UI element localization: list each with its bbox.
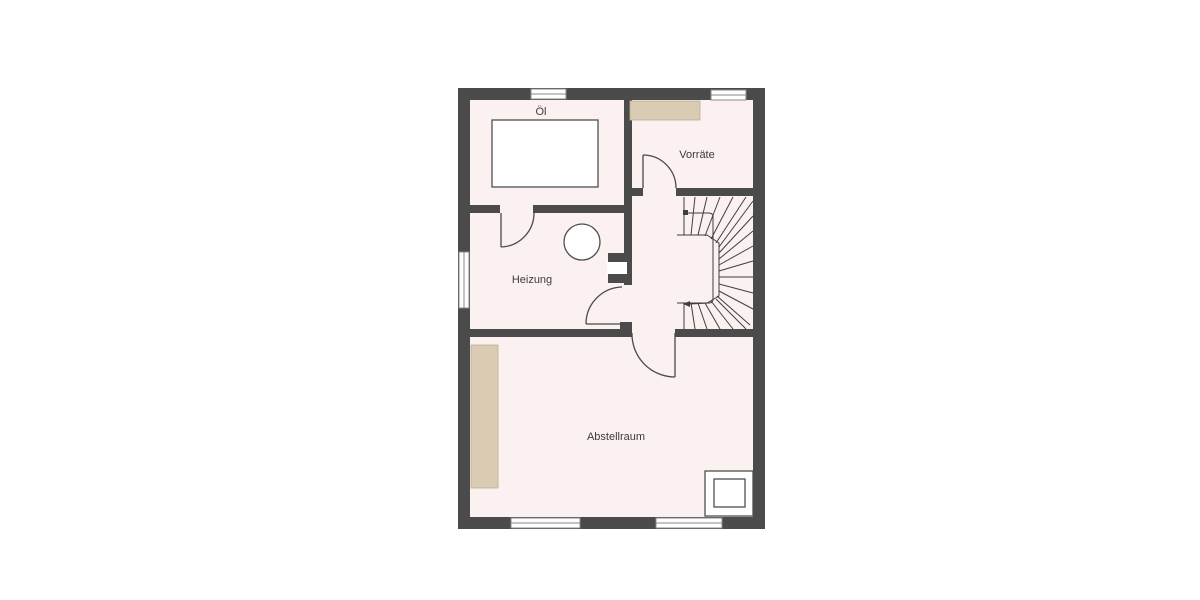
wall-segment bbox=[470, 329, 632, 337]
wall-segment bbox=[676, 188, 753, 196]
floor-shaft bbox=[705, 471, 753, 516]
wall-segment bbox=[632, 188, 643, 196]
floor-plan-canvas: Öl Vorräte Heizung Abstellraum bbox=[0, 0, 1200, 600]
window-bottom-left bbox=[511, 518, 580, 528]
window-top-oel bbox=[531, 89, 566, 99]
floor-shaft-inner bbox=[714, 479, 745, 507]
oil-tank bbox=[492, 120, 598, 187]
window-bottom-right bbox=[656, 518, 722, 528]
wall-segment bbox=[470, 205, 500, 213]
window-top-vorraete bbox=[711, 90, 746, 100]
chimney bbox=[607, 253, 632, 283]
walk-line-start-marker bbox=[683, 210, 688, 215]
storage-shelf-abstellraum bbox=[471, 345, 498, 488]
wall-segment bbox=[675, 329, 753, 337]
room-label-abstellraum: Abstellraum bbox=[587, 431, 645, 443]
room-label-vorraete: Vorräte bbox=[679, 149, 714, 161]
room-label-oel: Öl bbox=[536, 106, 547, 118]
floor-plan-svg: Öl Vorräte Heizung Abstellraum bbox=[0, 0, 1200, 600]
room-label-heizung: Heizung bbox=[512, 274, 552, 286]
window-left-heizung bbox=[459, 252, 469, 308]
wall-segment bbox=[533, 205, 624, 213]
boiler-circle bbox=[564, 224, 600, 260]
storage-shelf-vorraete bbox=[630, 101, 700, 120]
wall-segment bbox=[753, 88, 765, 529]
